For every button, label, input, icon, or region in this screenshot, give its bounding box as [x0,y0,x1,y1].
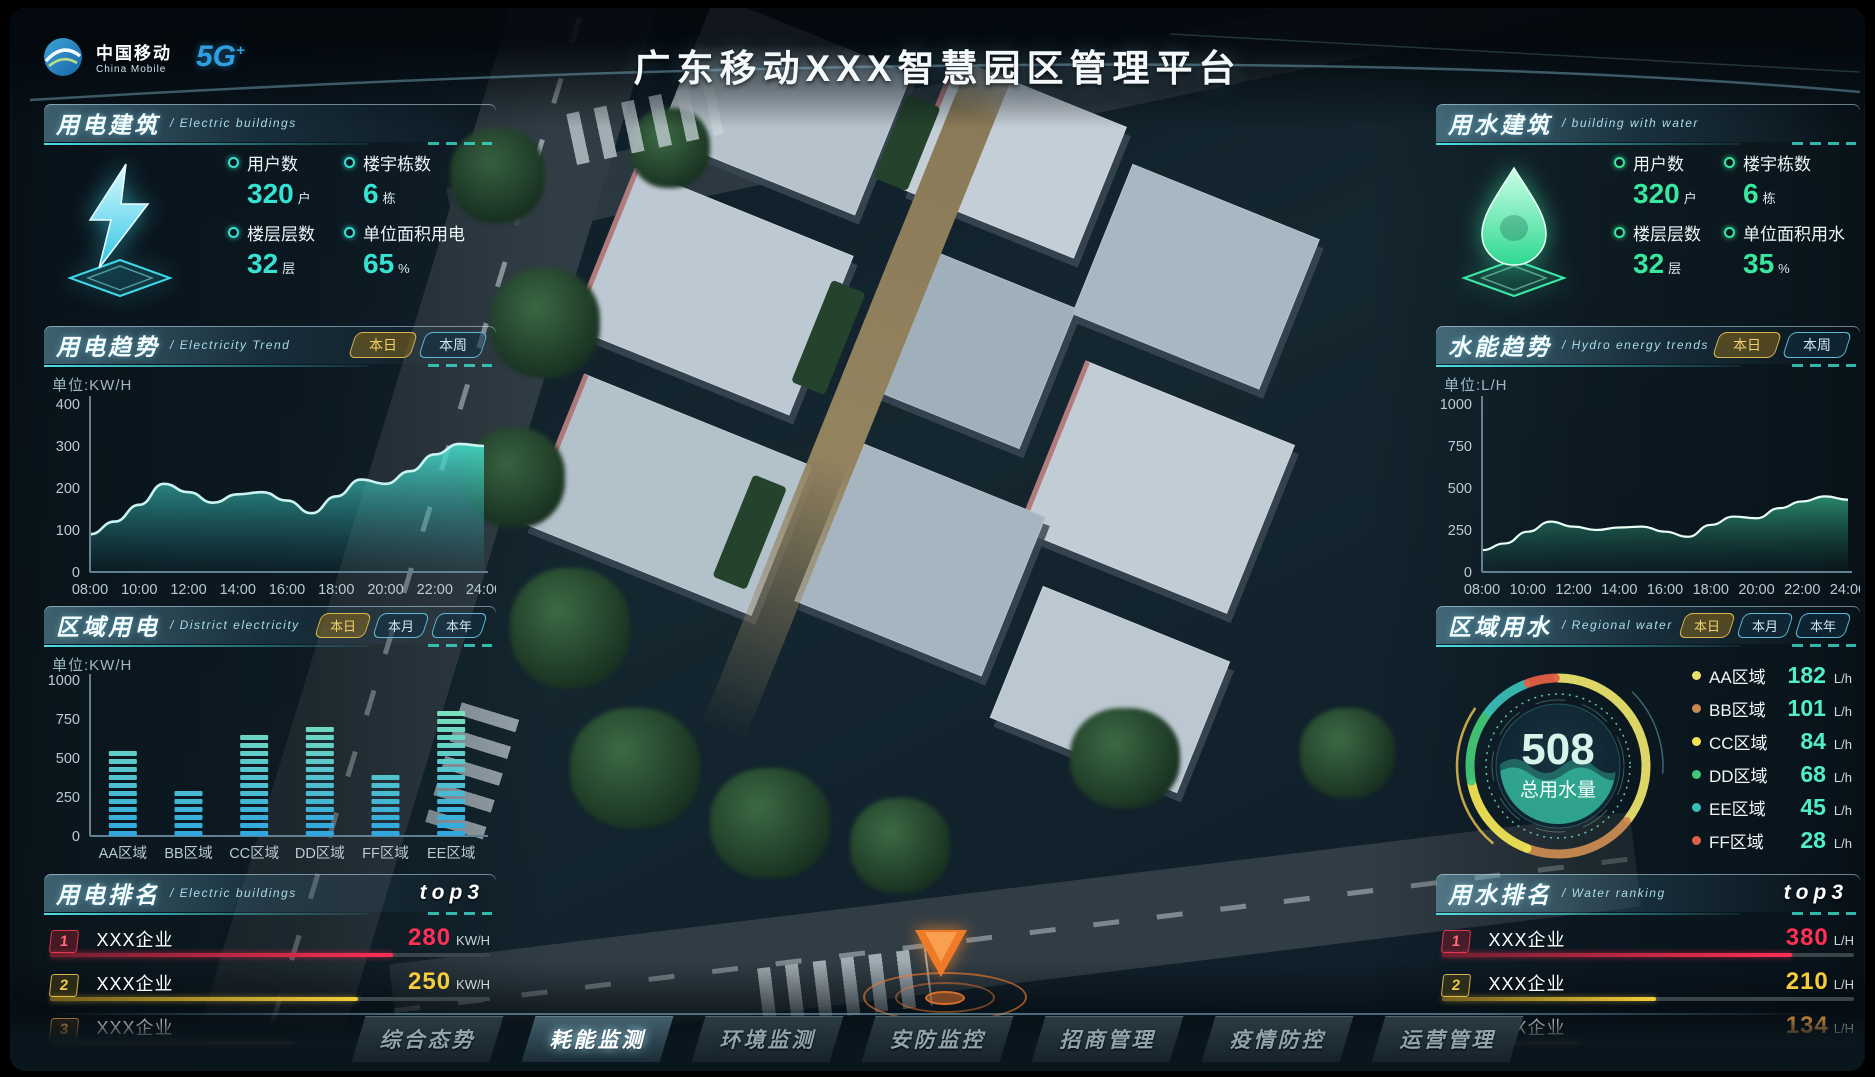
tab-today[interactable]: 本日 [1712,332,1782,358]
tab-this-week[interactable]: 本周 [1782,332,1852,358]
gauge-total-value: 508 [1521,725,1594,774]
panel-water-building: 用水建筑 / building with water 用户数 320户 [1436,104,1860,318]
legend-item: EE区域 45 L/h [1692,794,1852,821]
rank-name: XXX企业 [1488,930,1565,950]
svg-text:1000: 1000 [1440,397,1472,413]
dashboard-root: 中国移动 China Mobile 5G+ 广东移动XXX智慧园区管理平台 用电… [10,8,1865,1071]
panel-title: 水能趋势 [1448,328,1552,362]
svg-text:16:00: 16:00 [269,582,305,598]
legend-dot-icon [1692,671,1701,680]
svg-text:22:00: 22:00 [1784,582,1820,598]
nav-tab-environment[interactable]: 环境监测 [692,1016,844,1062]
rank-name: XXX企业 [96,930,173,950]
legend-item: AA区域 182 L/h [1692,662,1852,689]
svg-text:0: 0 [72,829,80,845]
tab-this-month[interactable]: 本月 [372,613,430,638]
svg-text:08:00: 08:00 [1464,582,1500,598]
stat-buildings: 楼宇栋数 6栋 [1724,150,1865,210]
legend-dot-icon [1692,803,1701,812]
tab-today[interactable]: 本日 [314,613,372,638]
panel-subtitle: / Regional water [1562,618,1673,632]
panel-regional-water-header: 区域用水 / Regional water 本日 本月 本年 [1436,606,1860,644]
svg-text:400: 400 [56,397,80,413]
svg-text:24:00: 24:00 [466,582,496,598]
panel-title: 用电趋势 [56,328,160,362]
panel-subtitle: / Electricity Trend [170,338,290,352]
svg-text:20:00: 20:00 [367,582,403,598]
svg-text:12:00: 12:00 [1555,582,1591,598]
legend-dot-icon [1692,770,1701,779]
panel-subtitle: / Water ranking [1562,886,1666,900]
rank-badge: 1 [49,930,79,953]
svg-text:750: 750 [1448,439,1472,455]
svg-text:FF区域: FF区域 [362,845,409,862]
tree [1070,708,1180,808]
svg-text:24:00: 24:00 [1830,582,1860,598]
svg-text:250: 250 [1448,523,1472,539]
svg-text:08:00: 08:00 [72,582,108,598]
district-electricity-chart: 02505007501000AA区域BB区域CC区域DD区域FF区域EE区域 [44,668,496,864]
panel-title: 用电建筑 [56,106,160,140]
tree [490,268,600,378]
rank-progress-fill [50,997,358,1001]
svg-text:500: 500 [1448,481,1472,497]
panel-electric-building-header: 用电建筑 / Electric buildings [44,104,496,142]
stat-water-per-area: 单位面积用水 35% [1724,220,1865,280]
svg-text:16:00: 16:00 [1647,582,1683,598]
panel-title: 区域用电 [56,608,160,642]
panel-electric-ranking-header: 用电排名 / Electric buildings top3 [44,874,496,912]
panel-water-ranking-header: 用水排名 / Water ranking top3 [1436,874,1860,912]
tree [1300,708,1395,798]
svg-text:14:00: 14:00 [220,582,256,598]
svg-text:300: 300 [56,439,80,455]
svg-text:18:00: 18:00 [1693,582,1729,598]
stat-bullet-icon [228,157,239,168]
panel-subtitle: / Electric buildings [170,116,297,130]
svg-text:10:00: 10:00 [1510,582,1546,598]
panel-subtitle: / Electric buildings [170,886,297,900]
panel-hydro-trend: 水能趋势 / Hydro energy trends 本日 本周 单位:L/H … [1436,326,1860,600]
svg-text:18:00: 18:00 [318,582,354,598]
nav-tab-security[interactable]: 安防监控 [862,1016,1014,1062]
svg-text:0: 0 [72,565,80,581]
legend-item: BB区域 101 L/h [1692,695,1852,722]
stat-bullet-icon [1724,157,1735,168]
tree [510,568,630,688]
tab-today[interactable]: 本日 [348,332,418,358]
water-drop-icon [1452,156,1576,311]
top3-badge: top3 [420,881,484,905]
legend-dot-icon [1692,836,1701,845]
rank-progress-fill [50,953,393,957]
nav-tab-energy-monitor[interactable]: 耗能监测 [522,1016,674,1062]
rank-name: XXX企业 [96,974,173,994]
stat-buildings: 楼宇栋数 6栋 [344,150,494,210]
rank-badge: 1 [1441,930,1471,953]
legend-item: FF区域 28 L/h [1692,827,1852,854]
svg-text:AA区域: AA区域 [99,845,147,862]
svg-text:200: 200 [56,481,80,497]
rank-progress-track [1442,953,1854,957]
bottom-nav: 综合态势 耗能监测 环境监测 安防监控 招商管理 疫情防控 运营管理 [10,1016,1865,1062]
rank-progress-track [1442,997,1854,1001]
stat-bullet-icon [1724,227,1735,238]
nav-tab-operations[interactable]: 运营管理 [1372,1016,1524,1062]
panel-regional-water: 区域用水 / Regional water 本日 本月 本年 [1436,606,1860,868]
tree [850,798,950,893]
tree [570,708,700,828]
tab-this-month[interactable]: 本月 [1736,613,1794,638]
gauge-total-label: 总用水量 [1520,779,1596,801]
panel-electric-trend-header: 用电趋势 / Electricity Trend 本日 本周 [44,326,496,364]
tab-this-week[interactable]: 本周 [418,332,488,358]
rank-badge: 2 [1441,974,1471,997]
panel-title: 用水排名 [1448,876,1552,910]
svg-text:DD区域: DD区域 [295,845,345,862]
rank-progress-track [50,953,490,957]
panel-hydro-trend-header: 水能趋势 / Hydro energy trends 本日 本周 [1436,326,1860,364]
svg-text:250: 250 [56,790,80,806]
ranking-row: 1 XXX企业 280KW/H [50,926,490,958]
ranking-row: 1 XXX企业 380L/H [1442,926,1854,958]
svg-text:10:00: 10:00 [121,582,157,598]
location-marker-icon[interactable] [915,930,967,977]
svg-text:20:00: 20:00 [1738,582,1774,598]
water-gauge-chart: 508 总用水量 [1440,648,1676,884]
panel-district-electricity: 区域用电 / District electricity 本日 本月 本年 单位:… [44,606,496,868]
stat-bullet-icon [1614,157,1625,168]
nav-tab-investment[interactable]: 招商管理 [1032,1016,1184,1062]
lightning-icon [54,156,186,311]
tab-this-year[interactable]: 本年 [1794,613,1852,638]
tree [710,768,830,878]
rank-progress-track [50,997,490,1001]
rank-name: XXX企业 [1488,974,1565,994]
svg-text:12:00: 12:00 [170,582,206,598]
panel-subtitle: / District electricity [170,618,300,632]
nav-tab-epidemic[interactable]: 疫情防控 [1202,1016,1354,1062]
stat-bullet-icon [1614,227,1625,238]
legend-dot-icon [1692,737,1701,746]
legend-dot-icon [1692,704,1701,713]
page-title: 广东移动XXX智慧园区管理平台 [10,38,1865,92]
panel-water-building-header: 用水建筑 / building with water [1436,104,1860,142]
svg-text:14:00: 14:00 [1601,582,1637,598]
svg-text:CC区域: CC区域 [229,845,279,862]
panel-electric-trend: 用电趋势 / Electricity Trend 本日 本周 单位:KW/H 0… [44,326,496,600]
stat-bullet-icon [344,227,355,238]
panel-subtitle: / building with water [1562,116,1699,130]
marker-ring [925,991,965,1005]
tab-today[interactable]: 本日 [1678,613,1736,638]
ranking-row: 2 XXX企业 210L/H [1442,970,1854,1002]
svg-text:EE区域: EE区域 [427,845,475,862]
svg-text:100: 100 [56,523,80,539]
stat-bullet-icon [344,157,355,168]
tab-this-year[interactable]: 本年 [430,613,488,638]
svg-text:22:00: 22:00 [417,582,453,598]
legend-item: CC区域 84 L/h [1692,728,1852,755]
electric-trend-chart: 010020030040008:0010:0012:0014:0016:0018… [44,390,496,600]
hydro-trend-chart: 0250500750100008:0010:0012:0014:0016:001… [1436,390,1860,600]
rank-progress-fill [1442,997,1656,1001]
rank-progress-fill [1442,953,1792,957]
panel-subtitle: / Hydro energy trends [1562,338,1709,352]
panel-district-electricity-header: 区域用电 / District electricity 本日 本月 本年 [44,606,496,644]
top3-badge: top3 [1784,881,1848,905]
svg-text:0: 0 [1464,565,1472,581]
svg-text:500: 500 [56,751,80,767]
panel-title: 用电排名 [56,876,160,910]
panel-title: 区域用水 [1448,608,1552,642]
rank-badge: 2 [49,974,79,997]
header: 中国移动 China Mobile 5G+ 广东移动XXX智慧园区管理平台 [10,8,1865,100]
ranking-row: 2 XXX企业 250KW/H [50,970,490,1002]
panel-title: 用水建筑 [1448,106,1552,140]
svg-text:BB区域: BB区域 [164,845,212,862]
stat-bullet-icon [228,227,239,238]
nav-tab-overview[interactable]: 综合态势 [352,1016,504,1062]
legend-item: DD区域 68 L/h [1692,761,1852,788]
svg-text:750: 750 [56,712,80,728]
stat-electricity-per-area: 单位面积用电 65% [344,220,494,280]
svg-text:1000: 1000 [48,673,80,689]
panel-electric-building: 用电建筑 / Electric buildings 用户数 320户 楼宇栋数 [44,104,496,318]
